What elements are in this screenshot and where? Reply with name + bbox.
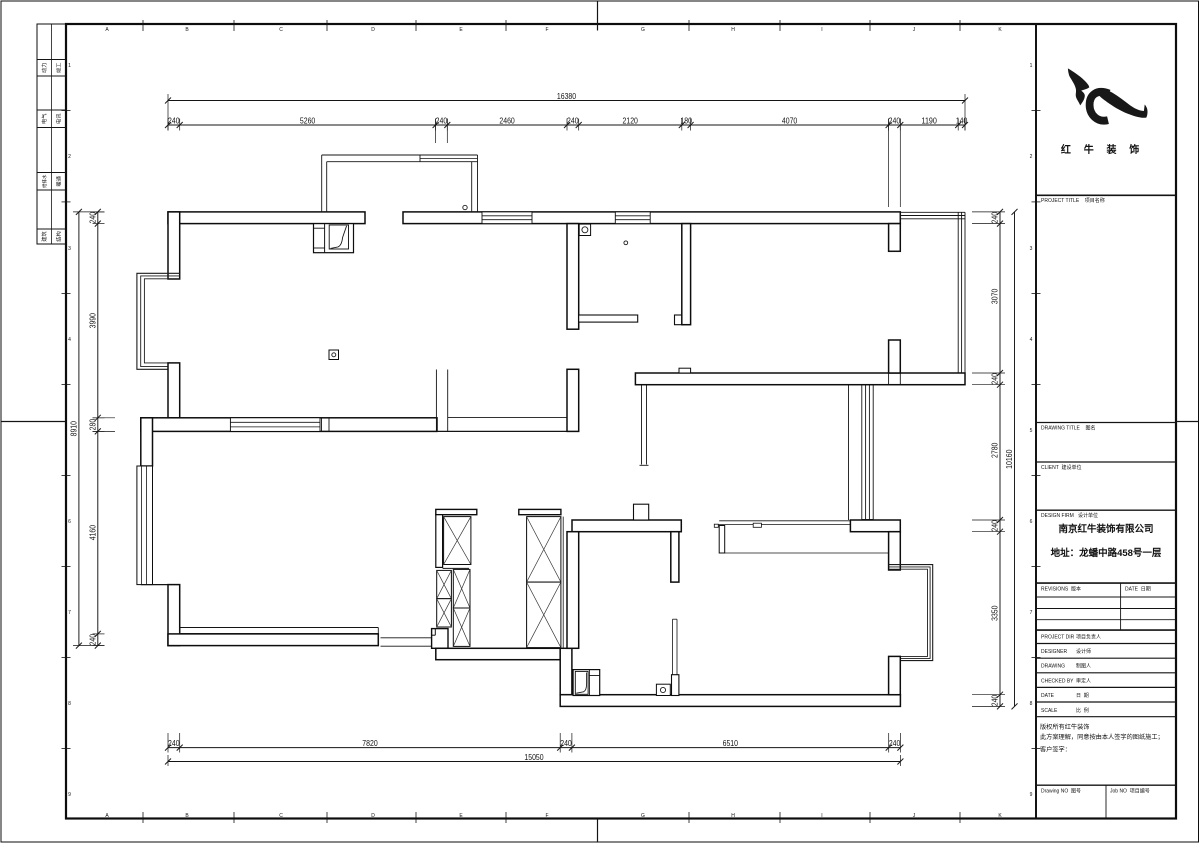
svg-text:DESIGN FIRM 设计单位: DESIGN FIRM 设计单位	[1041, 512, 1098, 519]
svg-text:3350: 3350	[990, 605, 1000, 621]
svg-text:3: 3	[1030, 246, 1033, 252]
svg-text:240: 240	[88, 634, 98, 646]
svg-text:动力: 动力	[40, 63, 48, 73]
svg-text:D: D	[371, 27, 375, 33]
svg-text:8910: 8910	[69, 421, 79, 437]
svg-text:Drawing NO 图号: Drawing NO 图号	[1041, 789, 1081, 795]
svg-text:240: 240	[990, 520, 1000, 532]
svg-text:6510: 6510	[723, 738, 739, 748]
svg-text:PROJECT DIR: PROJECT DIR	[1041, 635, 1075, 641]
svg-text:制图人: 制图人	[1076, 663, 1091, 670]
svg-text:地址：龙蟠中路458号一层: 地址：龙蟠中路458号一层	[1051, 547, 1162, 559]
svg-text:建筑: 建筑	[40, 231, 48, 242]
svg-text:REVISIONS 版本: REVISIONS 版本	[1041, 586, 1081, 593]
svg-text:设计师: 设计师	[1076, 648, 1091, 655]
svg-text:比 例: 比 例	[1076, 707, 1089, 714]
svg-text:DRAWING TITLE 图名: DRAWING TITLE 图名	[1041, 425, 1095, 432]
svg-text:5260: 5260	[300, 116, 316, 126]
svg-text:日 期: 日 期	[1076, 693, 1089, 699]
svg-text:G: G	[641, 813, 645, 819]
svg-text:240: 240	[168, 116, 180, 126]
svg-text:审定人: 审定人	[1076, 678, 1091, 685]
svg-text:2: 2	[1030, 154, 1033, 160]
svg-text:J: J	[913, 27, 916, 33]
svg-text:140: 140	[956, 116, 968, 126]
svg-text:15050: 15050	[524, 752, 544, 762]
svg-text:7820: 7820	[362, 738, 378, 748]
svg-text:CLIENT 建设单位: CLIENT 建设单位	[1041, 464, 1082, 471]
svg-text:4160: 4160	[88, 525, 98, 541]
svg-text:DATE 日期: DATE 日期	[1125, 587, 1151, 593]
svg-text:240: 240	[889, 116, 901, 126]
svg-text:E: E	[459, 27, 463, 33]
svg-text:项目负责人: 项目负责人	[1076, 634, 1101, 641]
svg-text:2460: 2460	[499, 116, 515, 126]
svg-text:暖通: 暖通	[55, 175, 63, 186]
svg-text:240: 240	[436, 116, 448, 126]
svg-text:电气: 电气	[40, 114, 48, 124]
svg-text:240: 240	[990, 694, 1000, 706]
svg-text:竣工: 竣工	[55, 63, 63, 73]
svg-text:240: 240	[990, 212, 1000, 224]
svg-text:CHECKED BY: CHECKED BY	[1041, 679, 1074, 685]
svg-text:2: 2	[68, 154, 71, 160]
svg-text:16380: 16380	[557, 91, 577, 101]
svg-text:南京红牛装饰有限公司: 南京红牛装饰有限公司	[1058, 523, 1153, 535]
svg-text:240: 240	[88, 212, 98, 224]
svg-text:D: D	[371, 813, 375, 819]
svg-text:1: 1	[68, 63, 71, 69]
svg-text:10160: 10160	[1004, 449, 1014, 469]
svg-text:3: 3	[68, 246, 71, 252]
svg-text:C: C	[279, 813, 283, 819]
svg-text:DATE: DATE	[1041, 693, 1055, 699]
svg-text:2780: 2780	[990, 442, 1000, 458]
svg-text:280: 280	[88, 419, 98, 431]
svg-text:H: H	[731, 27, 735, 33]
svg-text:PROJECT TITLE 项目名称: PROJECT TITLE 项目名称	[1041, 197, 1105, 204]
svg-text:结构: 结构	[55, 231, 63, 241]
svg-text:1: 1	[1030, 63, 1033, 69]
svg-text:2120: 2120	[623, 116, 639, 126]
svg-text:4: 4	[68, 337, 71, 343]
svg-text:DRAWING: DRAWING	[1041, 664, 1065, 670]
svg-text:F: F	[545, 813, 548, 819]
svg-text:240: 240	[168, 738, 180, 748]
svg-text:3070: 3070	[990, 288, 1000, 304]
svg-text:给排水: 给排水	[41, 174, 48, 188]
svg-text:1190: 1190	[922, 116, 938, 126]
svg-text:7: 7	[1030, 610, 1033, 616]
svg-text:8: 8	[68, 701, 71, 707]
svg-text:DESIGNER: DESIGNER	[1041, 649, 1068, 655]
svg-text:5: 5	[1030, 428, 1033, 434]
svg-text:F: F	[545, 27, 548, 33]
svg-text:SCALE: SCALE	[1041, 708, 1058, 714]
svg-text:I: I	[821, 813, 822, 819]
svg-text:客户签字：: 客户签字：	[1040, 746, 1071, 754]
svg-text:此方案理解，同意按由本人签字的图纸施工；: 此方案理解，同意按由本人签字的图纸施工；	[1040, 733, 1164, 741]
svg-text:K: K	[998, 27, 1002, 33]
svg-text:3990: 3990	[88, 313, 98, 329]
svg-text:Job NO 项目编号: Job NO 项目编号	[1110, 788, 1150, 795]
svg-text:7: 7	[68, 610, 71, 616]
svg-text:6: 6	[68, 519, 71, 525]
svg-text:240: 240	[567, 116, 579, 126]
svg-text:240: 240	[990, 373, 1000, 385]
svg-text:9: 9	[1030, 792, 1033, 798]
svg-text:H: H	[731, 813, 735, 819]
svg-text:240: 240	[889, 738, 901, 748]
svg-text:红牛装饰: 红牛装饰	[1061, 143, 1152, 156]
svg-text:I: I	[821, 27, 822, 33]
svg-text:G: G	[641, 27, 645, 33]
svg-text:C: C	[279, 27, 283, 33]
svg-text:240: 240	[560, 738, 572, 748]
svg-text:180: 180	[680, 116, 692, 126]
svg-text:A: A	[105, 27, 109, 33]
svg-text:4: 4	[1030, 337, 1033, 343]
svg-text:版权所有红牛装饰: 版权所有红牛装饰	[1040, 723, 1090, 731]
svg-text:电讯: 电讯	[55, 113, 63, 124]
svg-text:8: 8	[1030, 701, 1033, 707]
svg-text:9: 9	[68, 792, 71, 798]
svg-text:B: B	[185, 27, 189, 33]
svg-text:6: 6	[1030, 519, 1033, 525]
svg-text:4070: 4070	[782, 116, 798, 126]
